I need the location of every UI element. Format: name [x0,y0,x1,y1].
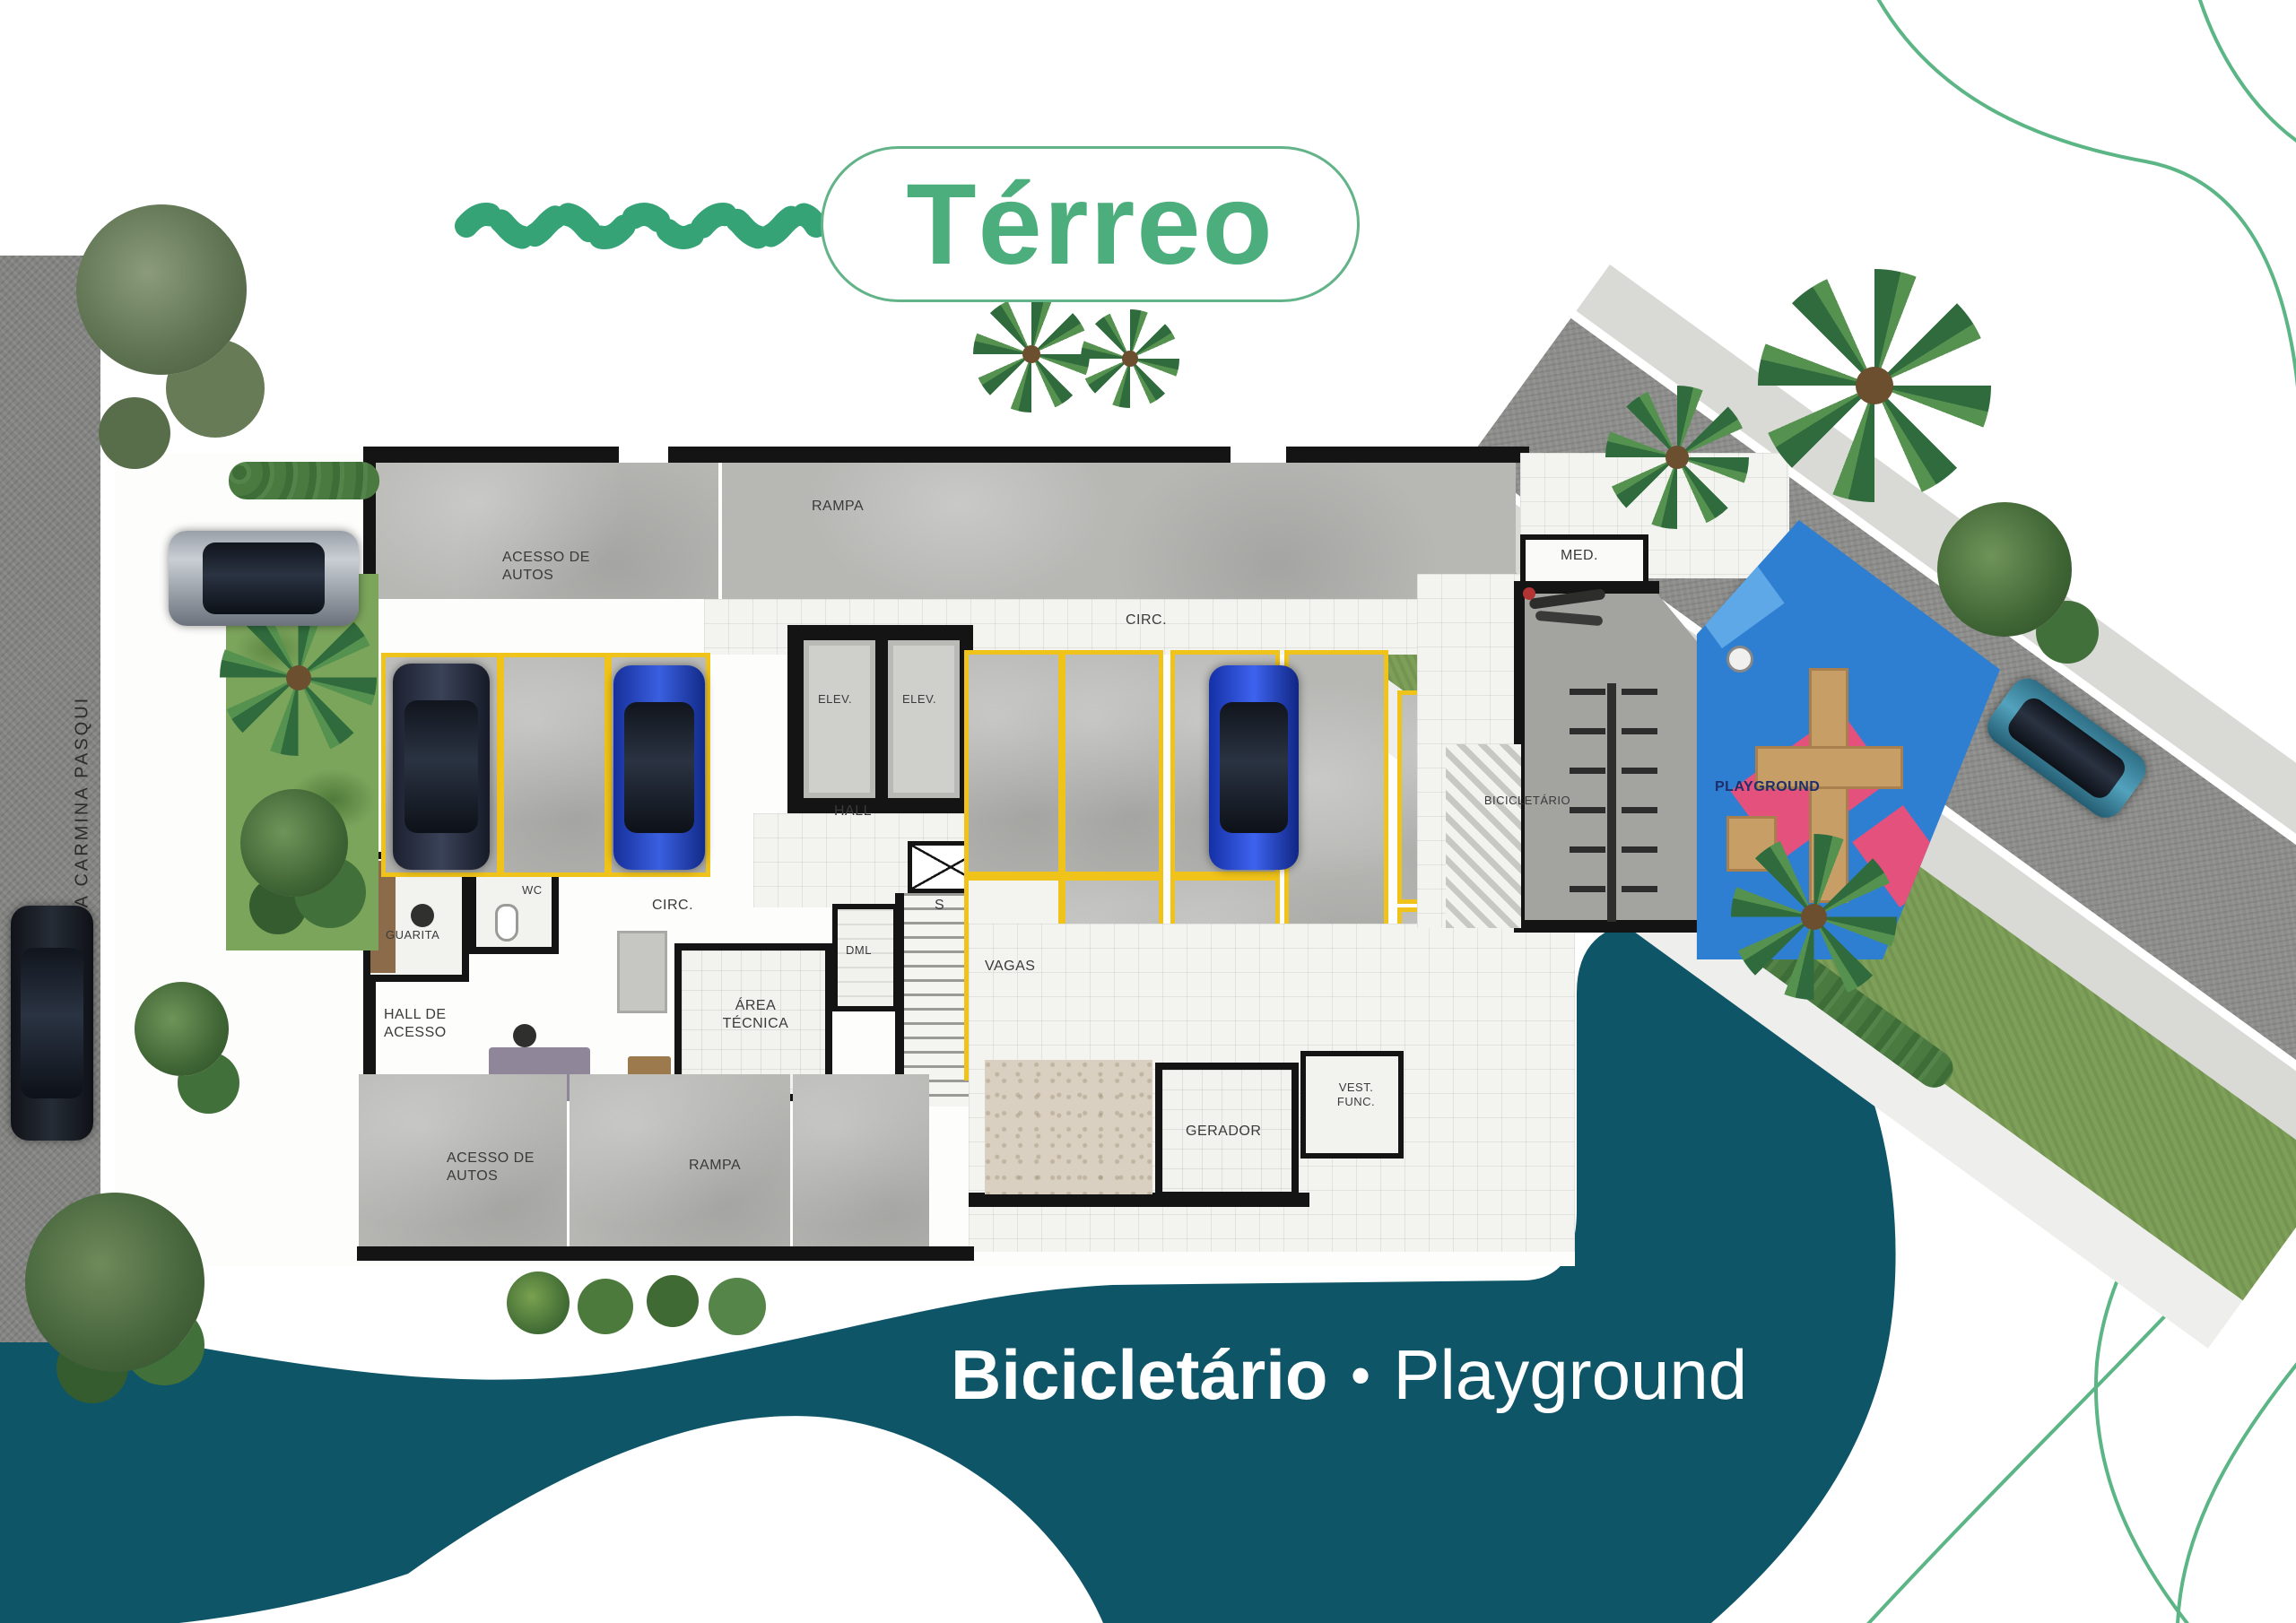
slab-extra-bottom [793,1074,929,1248]
palm-top-sidewalk-2 [1081,309,1179,408]
wall-top [363,447,1529,463]
caption-bold: Bicicletário [951,1334,1328,1416]
tree-bottom-left [25,1193,204,1372]
label-circ-top: CIRC. [1126,612,1167,629]
car-garage-dark [393,664,490,870]
label-dml: DML [846,943,872,958]
label-bicicletario: BICICLETÁRIO [1451,794,1604,808]
label-vagas: VAGAS [985,958,1035,976]
palm-bottom-playground [1731,834,1897,1000]
bike-red-dot [1523,587,1535,600]
bike-rack-2 [1622,689,1657,920]
bushes-left-edge [135,982,229,1076]
label-hall-de-acesso: HALL DE ACESSO [384,1006,496,1042]
slab-rampa-top [722,463,1516,599]
caption: Bicicletário • Playground [951,1334,1830,1416]
label-stairs: S [935,897,944,915]
page: Bicicletário • Playground Térreo RUA CAR… [0,0,2296,1623]
label-gerador: GERADOR [1186,1123,1261,1141]
label-rampa-top: RAMPA [812,498,864,516]
label-area-tecnica: ÁREA TÉCNICA [713,997,798,1033]
label-hall: HALL [834,803,872,820]
palm-top-playground [1605,386,1749,529]
hatched-area [1446,744,1521,928]
bush-row-bottom [507,1271,570,1334]
label-vest-func: VEST. FUNC. [1329,1081,1383,1110]
elevator-shaft-2 [888,640,960,798]
bike-rack-bar [1607,683,1616,922]
tree-right-street [1937,502,2072,637]
car-glass [203,542,325,615]
palm-over-street [1758,269,1991,502]
label-circ-mid: CIRC. [652,897,693,915]
stall-c2 [1061,650,1163,876]
gate-notch-2 [1231,447,1286,463]
bike-wall-bottom [1514,920,1709,933]
toilet-icon [495,904,518,942]
label-acesso-autos-bottom: ACESSO DE AUTOS [447,1150,563,1185]
label-guarita: GUARITA [386,928,439,942]
car-glass [624,702,694,833]
label-playground: PLAYGROUND [1715,778,1820,796]
caption-separator: • [1352,1341,1370,1410]
tree-top-left [76,204,247,375]
hedge-top-forecourt [229,462,379,499]
gate-notch-1 [619,447,668,463]
car-garage-blue-center [1209,665,1299,870]
car-glass [1220,702,1288,833]
guarita-chair [411,904,434,927]
slab-rampa-bottom [570,1074,790,1248]
bushes-left-garden [240,789,348,897]
label-rampa-bottom: RAMPA [689,1157,741,1175]
elevator-shaft-1 [804,640,875,798]
title-pill: Térreo [821,146,1360,302]
car-garage-blue-left [613,665,705,870]
label-elev-2: ELEV. [902,692,936,707]
stall-left-2 [500,653,609,877]
wall-bottom [357,1246,974,1261]
gravel-patch [985,1060,1152,1194]
car-glass [404,700,478,832]
label-wc: WC [522,883,543,898]
spring-rider [1726,646,1753,673]
sink-counter [617,931,667,1013]
page-title: Térreo [906,159,1274,291]
caption-regular: Playground [1394,1334,1748,1416]
label-acesso-autos-top: ACESSO DE AUTOS [502,549,619,585]
label-med: MED. [1561,547,1598,565]
car-forecourt-grey [169,531,359,626]
stall-c1 [964,650,1063,876]
label-elev-1: ELEV. [818,692,852,707]
palm-top-sidewalk-1 [973,296,1090,412]
reception-chair [513,1024,536,1047]
